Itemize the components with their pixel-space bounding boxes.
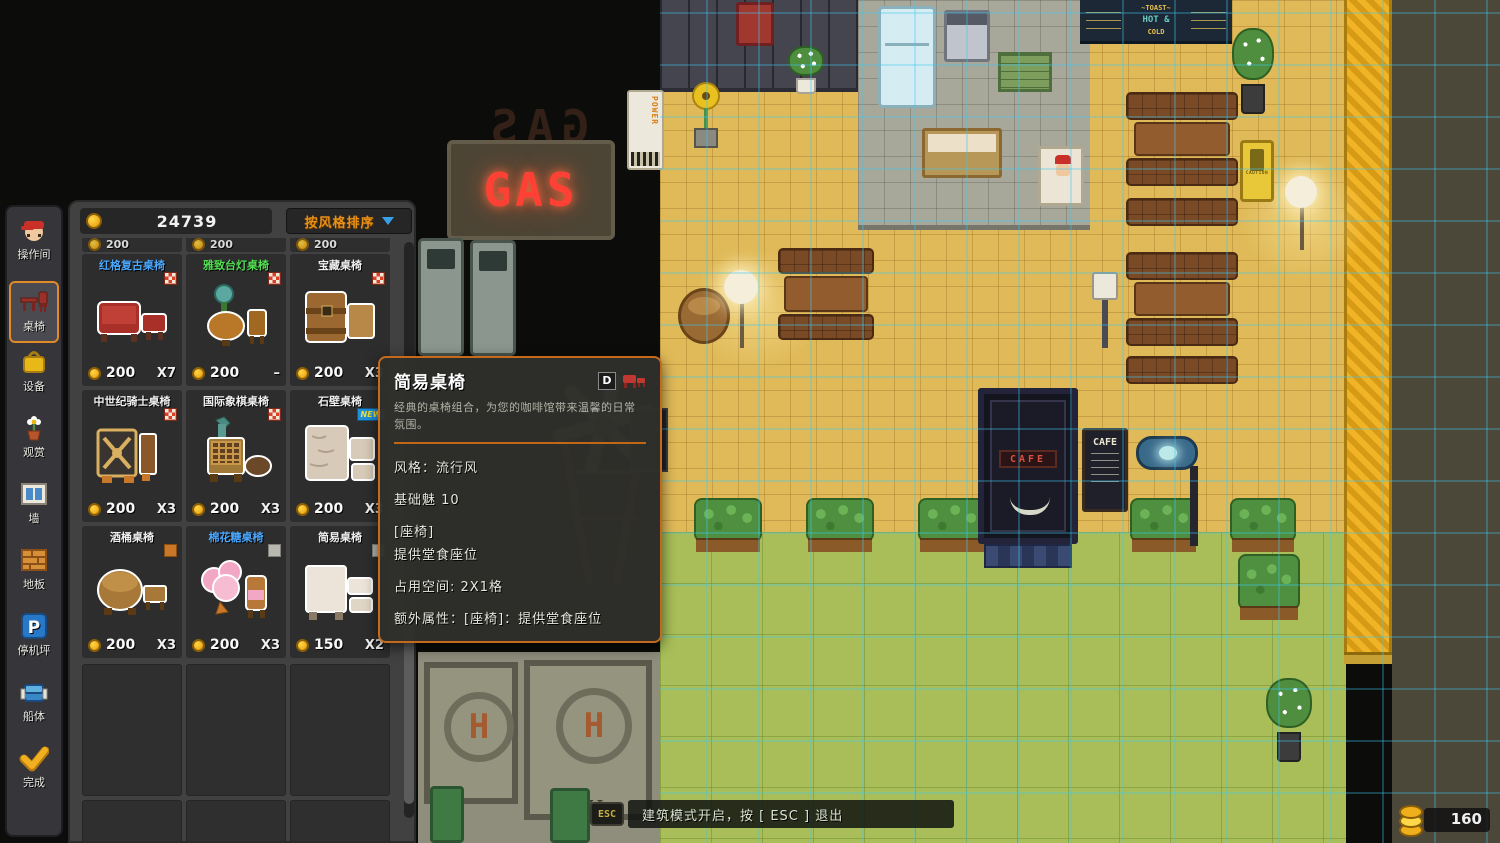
coin-icon	[296, 238, 309, 251]
svg-text:P: P	[28, 618, 40, 638]
gas-sign-board: GAS	[447, 140, 615, 240]
caution-glyph	[1250, 149, 1264, 171]
power-label: POWER	[650, 96, 659, 125]
coin-icon	[296, 367, 309, 380]
vending-machine	[736, 2, 774, 46]
cafe-sandwich-board[interactable]: CAFE	[1082, 428, 1128, 512]
coin-balance-field: 24739	[80, 208, 272, 234]
checkmark-icon	[19, 743, 49, 773]
helipad-square: H	[424, 662, 518, 804]
shop-cell-empty	[82, 800, 182, 843]
item-count: X3	[157, 638, 176, 653]
item-count: X7	[157, 366, 176, 381]
item-thumbnail	[300, 552, 380, 626]
booth-bench[interactable]	[1126, 92, 1238, 120]
coin-icon	[192, 639, 205, 652]
sidebar-item-floor[interactable]: 地板	[9, 545, 59, 607]
mug-stand[interactable]	[1088, 272, 1122, 348]
hedge-planter[interactable]	[806, 498, 874, 552]
sidebar-item-equipment[interactable]: 设备	[9, 347, 59, 409]
coin-icon	[192, 367, 205, 380]
hedge-planter[interactable]	[918, 498, 986, 552]
menu-chalkboard: ~TOAST~ HOT & COLD	[1080, 0, 1232, 44]
item-thumbnail	[300, 416, 380, 490]
barrel-table[interactable]	[678, 288, 730, 344]
shop-cell-partial[interactable]: 200	[82, 238, 182, 252]
coin-icon	[86, 213, 102, 229]
cafe-board-lines	[1091, 453, 1119, 483]
sidebar-item-helipad[interactable]: P 停机坪	[9, 611, 59, 673]
shelf-plant	[788, 46, 824, 96]
sidebar-item-label: 桌椅	[11, 318, 57, 334]
shop-cell-partial[interactable]: 200	[290, 238, 390, 252]
sidebar-item-label: 墙	[9, 510, 59, 526]
coin-icon	[88, 367, 101, 380]
item-thumbnail	[196, 280, 276, 354]
booth-table[interactable]	[1134, 122, 1230, 156]
floor-lamp-pole	[740, 300, 744, 348]
sidebar-item-label: 地板	[9, 576, 59, 592]
helipad-letter: H	[584, 706, 604, 746]
item-thumbnail	[92, 280, 172, 354]
booth-bench[interactable]	[1126, 158, 1238, 186]
item-name: 红格复古桌椅	[82, 257, 182, 273]
booth-bench[interactable]	[1126, 318, 1238, 346]
item-name: 宝藏桌椅	[290, 257, 390, 273]
table-chair-icon	[19, 287, 49, 317]
shop-item-barrel[interactable]: 酒桶桌椅 200 X3	[82, 526, 182, 658]
item-name: 棉花糖桌椅	[186, 529, 286, 545]
item-price: 200	[210, 365, 239, 381]
menu-lines-right	[1191, 5, 1226, 36]
hedge-planter[interactable]	[1238, 554, 1300, 620]
shop-item-cotton-candy[interactable]: 棉花糖桌椅 200 X3	[186, 526, 286, 658]
gas-neon-sign: GAS	[483, 163, 578, 217]
wallet-amount: 160	[1424, 808, 1490, 832]
shop-item-simple[interactable]: 简易桌椅 150 X2	[290, 526, 390, 658]
sidebar-item-workshop[interactable]: 操作间	[9, 215, 59, 277]
sidebar-item-label: 设备	[9, 378, 59, 394]
parking-icon: P	[19, 611, 49, 641]
sidebar-item-wall[interactable]: 墙	[9, 479, 59, 541]
item-count: –	[274, 366, 281, 381]
furniture-shop-panel: 24739 按风格排序 200 200 200 红格复古桌椅	[68, 200, 416, 843]
shop-item-lamp-table[interactable]: 雅致台灯桌椅 200 –	[186, 254, 286, 386]
build-mode-message: 建筑模式开启，按 [ ESC ] 退出	[628, 800, 954, 828]
item-name: 雅致台灯桌椅	[186, 257, 286, 273]
item-thumbnail	[196, 552, 276, 626]
item-count: X3	[157, 502, 176, 517]
fridge[interactable]	[878, 6, 936, 108]
shop-cell-empty	[186, 664, 286, 796]
coin-stack-icon	[1398, 803, 1426, 837]
item-count: X3	[261, 638, 280, 653]
shop-cell-partial[interactable]: 200	[186, 238, 286, 252]
item-name: 国际象棋桌椅	[186, 393, 286, 409]
floor-lamp[interactable]	[724, 270, 758, 304]
item-name: 简易桌椅	[290, 529, 390, 545]
item-thumbnail	[92, 552, 172, 626]
tooltip-extra-line: 额外属性：[座椅]：提供堂食座位	[394, 608, 646, 627]
tooltip-space-line: 占用空间: 2X1格	[394, 576, 646, 595]
sidebar-item-done[interactable]: 完成	[9, 743, 59, 805]
menu-screen	[998, 52, 1052, 92]
hedge-planter[interactable]	[694, 498, 762, 552]
tooltip-style-line: 风格：流行风	[394, 457, 646, 476]
menu-lines-left	[1086, 5, 1121, 36]
shop-cell-empty	[186, 800, 286, 843]
item-thumbnail	[92, 416, 172, 490]
caution-label: CAUTION	[1243, 171, 1271, 176]
white-flower-plant[interactable]	[1266, 678, 1312, 766]
workshop-icon	[19, 215, 49, 245]
item-price: 200	[314, 238, 337, 251]
shop-item-chess[interactable]: 国际象棋桌椅 200 X3	[186, 390, 286, 522]
coin-icon	[192, 238, 205, 251]
coin-balance: 24739	[102, 212, 272, 231]
cafe-board-sign: CAFE	[1085, 437, 1125, 448]
barista-poster	[1038, 146, 1084, 206]
coin-icon	[88, 238, 101, 251]
shop-cell-empty	[82, 664, 182, 796]
sidebar-item-label: 操作间	[9, 246, 59, 262]
booth-bench[interactable]	[1126, 198, 1238, 226]
item-count: X3	[261, 502, 280, 517]
item-price: 200	[106, 637, 135, 653]
cafe-door-sign: CAFE	[999, 450, 1057, 468]
hedge-planter[interactable]	[1130, 498, 1198, 552]
tooltip-divider	[394, 442, 646, 444]
bread-display[interactable]	[922, 128, 1002, 178]
shop-item-knight[interactable]: 中世纪骑士桌椅 200 X3	[82, 390, 182, 522]
item-name: 酒桶桌椅	[82, 529, 182, 545]
item-price: 200	[106, 238, 129, 251]
tooltip-seat-desc: 提供堂食座位	[394, 544, 646, 563]
door-mat	[984, 544, 1072, 568]
item-price: 200	[210, 501, 239, 517]
item-thumbnail	[196, 416, 276, 490]
shop-item-stone[interactable]: 石壁桌椅 NEW 200 X3	[290, 390, 390, 522]
booth-bench[interactable]	[778, 248, 874, 274]
coin-icon	[192, 503, 205, 516]
item-price: 200	[210, 637, 239, 653]
floor-lamp[interactable]	[1285, 176, 1317, 208]
window-wall-icon	[19, 479, 49, 509]
sort-dropdown-label: 按风格排序	[304, 212, 374, 231]
wallet: 160	[1398, 803, 1498, 839]
cafe-outer-wall[interactable]	[1344, 0, 1392, 652]
tooltip-seat-tag: [座椅]	[394, 521, 646, 540]
coffee-machine[interactable]	[944, 10, 990, 62]
shop-cell-empty	[290, 800, 390, 843]
sidebar-item-label: 船体	[9, 708, 59, 724]
outside-area[interactable]	[1392, 0, 1500, 843]
item-price: 200	[314, 501, 343, 517]
tooltip-item-icon	[622, 372, 646, 390]
sidebar-item-label: 完成	[9, 774, 59, 790]
coin-icon	[296, 503, 309, 516]
menu-title: ~TOAST~	[1127, 3, 1185, 14]
grade-badge: D	[598, 372, 616, 390]
power-box: POWER	[627, 90, 664, 170]
booth-table[interactable]	[784, 276, 868, 312]
gas-pump	[418, 238, 464, 356]
hedge-planter[interactable]	[1230, 498, 1296, 552]
coin-icon	[88, 503, 101, 516]
booth-bench[interactable]	[1126, 356, 1238, 384]
item-thumbnail	[300, 280, 380, 354]
sidebar-item-label: 观赏	[9, 444, 59, 460]
menu-sub2: COLD	[1127, 27, 1185, 38]
item-tooltip: 简易桌椅 D 经典的桌椅组合，为您的咖啡馆带来温馨的日常氛围。 风格：流行风 基…	[378, 356, 662, 643]
shop-cell-empty	[290, 664, 390, 796]
item-name: 石壁桌椅	[290, 393, 390, 409]
sidebar-item-decor[interactable]: 观赏	[9, 413, 59, 475]
item-price: 200	[210, 238, 233, 251]
coin-icon	[296, 639, 309, 652]
floor-lamp-pole	[1300, 204, 1304, 250]
white-flower-plant[interactable]	[1232, 28, 1274, 120]
booth-bench[interactable]	[1126, 252, 1238, 280]
item-price: 150	[314, 637, 343, 653]
sidebar-item-tables[interactable]: 桌椅	[9, 281, 59, 343]
green-machine	[550, 788, 590, 843]
shop-item-treasure[interactable]: 宝藏桌椅 200 X3	[290, 254, 390, 386]
gas-pump	[470, 240, 516, 356]
menu-sub1: HOT &	[1127, 14, 1185, 28]
chevron-down-icon	[382, 217, 394, 225]
helipad-letter: H	[469, 707, 489, 747]
item-price: 200	[314, 365, 343, 381]
floor-tile-icon	[19, 545, 49, 575]
item-name: 中世纪骑士桌椅	[82, 393, 182, 409]
item-price: 200	[106, 365, 135, 381]
build-category-sidebar: 操作间 桌椅 设备 观赏	[5, 205, 63, 837]
street-lamp-pole	[1190, 466, 1198, 546]
caution-sign[interactable]: CAUTION	[1240, 140, 1274, 202]
sunflower-pot[interactable]	[686, 82, 726, 152]
tooltip-description: 经典的桌椅组合，为您的咖啡馆带来温馨的日常氛围。	[394, 399, 646, 433]
tooltip-charm-line: 基础魅 10	[394, 489, 646, 508]
coin-icon	[88, 639, 101, 652]
sort-dropdown[interactable]: 按风格排序	[286, 208, 412, 234]
sidebar-item-hull[interactable]: 船体	[9, 677, 59, 739]
tooltip-title: 简易桌椅	[394, 368, 466, 393]
green-machine	[430, 786, 464, 843]
esc-keycap[interactable]: ESC	[590, 802, 624, 826]
street-lamp[interactable]	[1136, 436, 1198, 470]
flower-icon	[19, 413, 49, 443]
bag-icon	[19, 347, 49, 377]
boat-hull-icon	[19, 677, 49, 707]
item-price: 200	[106, 501, 135, 517]
booth-table[interactable]	[1134, 282, 1230, 316]
shop-item-red-retro[interactable]: 红格复古桌椅 200 X7	[82, 254, 182, 386]
cafe-door[interactable]: CAFE	[978, 388, 1078, 544]
sidebar-item-label: 停机坪	[9, 642, 59, 658]
cafe-outer-wall-end	[1344, 652, 1392, 664]
booth-bench[interactable]	[778, 314, 874, 340]
game-screen: ~TOAST~ HOT & COLD CAUTION	[0, 0, 1500, 843]
